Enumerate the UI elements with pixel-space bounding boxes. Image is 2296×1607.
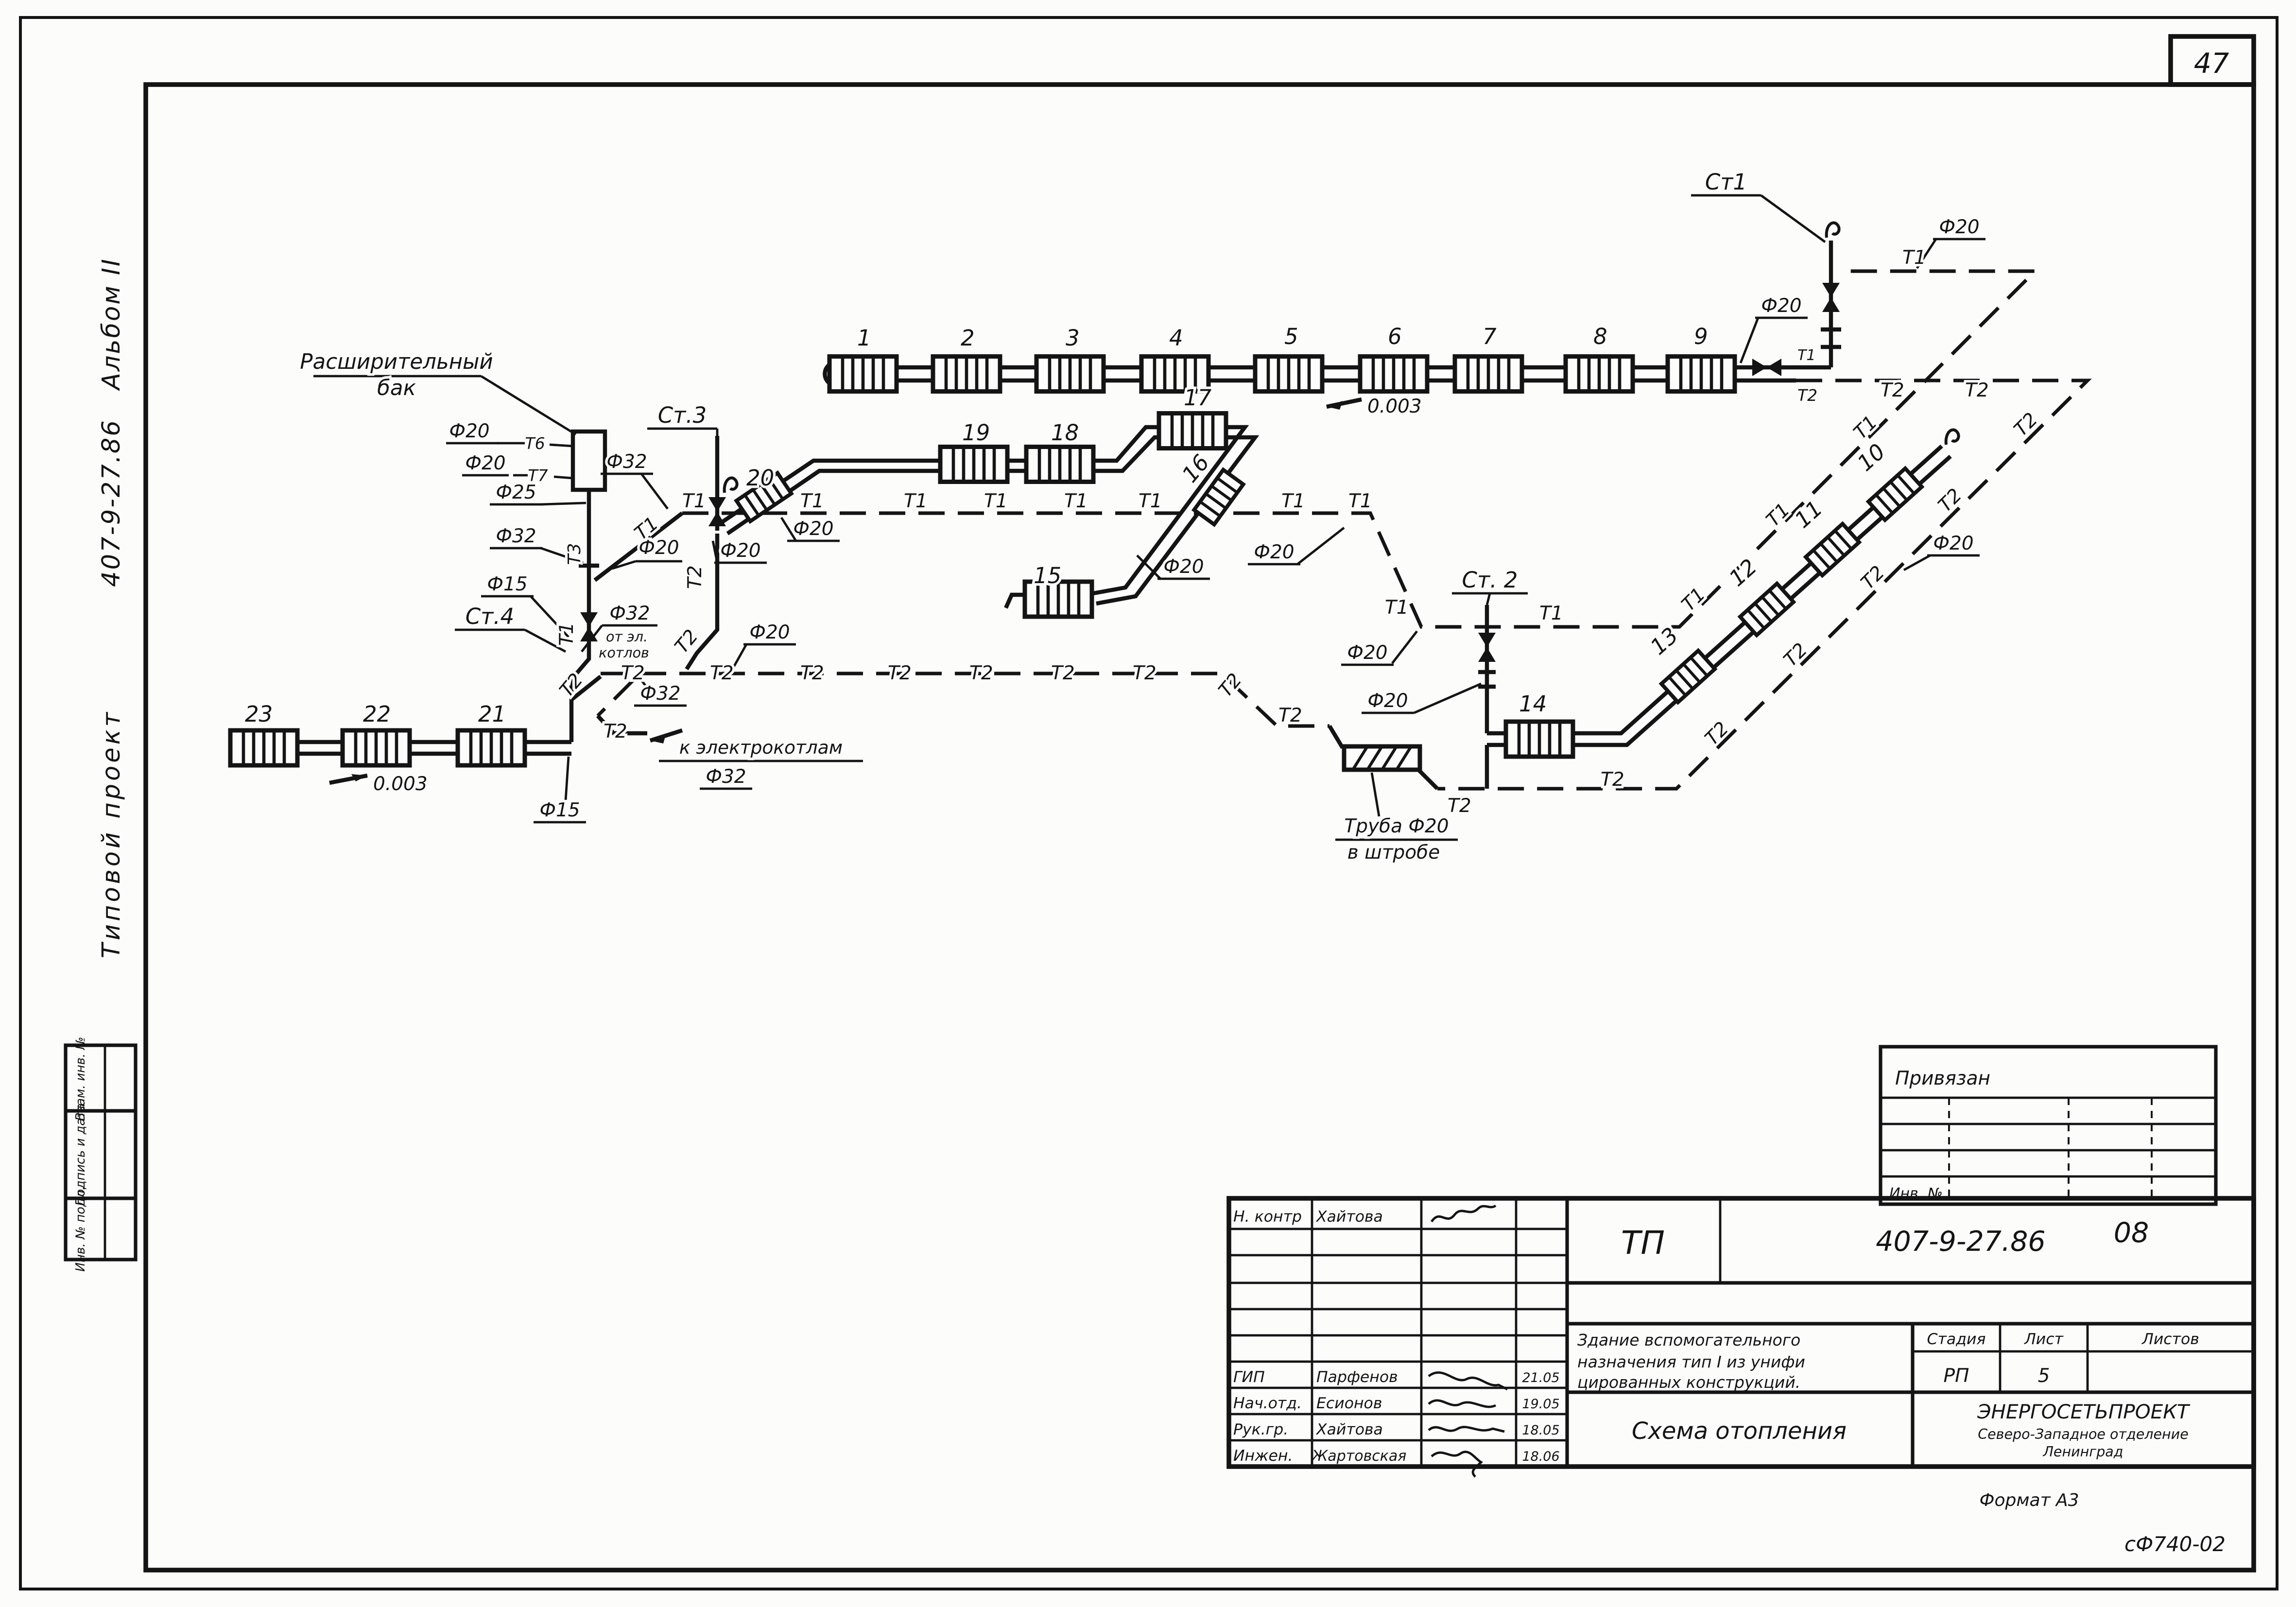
pipe-label-t1: Т1 [984, 490, 1008, 512]
title-block: Н. контр Хайтова ГИП Парфенов 21.05 Нач.… [1229, 1198, 2254, 1477]
pipe-label-t2: Т2 [2010, 409, 2042, 441]
pipe-label-t2: Т2 [1051, 662, 1075, 684]
radiator-number: 5 [1284, 324, 1298, 349]
dim-label-f20: Ф20 [1933, 533, 1973, 554]
radiator-symbol [1360, 357, 1427, 392]
slope-value: 0.003 [373, 773, 428, 795]
dim-label-f32: Ф32 [609, 603, 650, 624]
expansion-tank [573, 432, 605, 490]
pipe-label-t2: Т2 [1701, 718, 1733, 750]
radiator-symbol [343, 730, 410, 765]
tb-name: Хайтова [1315, 1421, 1383, 1438]
radiator-symbol [1868, 468, 1922, 520]
dim-label-f20: Ф20 [720, 540, 760, 562]
pipe-label-t1: Т1 [1281, 490, 1305, 512]
margin-project-type: Типовой проект [97, 709, 126, 958]
pipe-label-t1: Т1 [682, 490, 706, 512]
dim-label-f20: Ф20 [465, 452, 505, 474]
pipe-label-t2: Т2 [1779, 639, 1812, 671]
form-code: сФ740-02 [2124, 1532, 2226, 1556]
tb-name: Есионов [1316, 1395, 1382, 1412]
dim-label-f15: Ф15 [539, 799, 580, 821]
radiator-symbol [933, 357, 1000, 392]
air-vent-icon [725, 478, 737, 493]
drawing-sheet: 47 Альбом II 407-9-27.86 Типовой проект … [0, 0, 2296, 1607]
tb-sheets-label: Листов [2141, 1331, 2199, 1348]
margin-album: Альбом II [97, 258, 126, 391]
tb-role: Нач.отд. [1233, 1395, 1302, 1412]
note-from-boilers-2: котлов [599, 645, 649, 661]
radiator-number: 10 [1852, 438, 1890, 476]
radiator-number: 18 [1051, 420, 1079, 446]
radiator-number: 20 [746, 465, 774, 491]
tb-sheet-value: 5 [2038, 1365, 2050, 1387]
tb-name: Парфенов [1316, 1368, 1398, 1386]
signature [1429, 1427, 1504, 1432]
dim-label-f32: Ф32 [706, 766, 746, 788]
outer-border [20, 17, 2277, 1589]
radiator-number: 22 [363, 701, 391, 727]
radiator-number: 21 [478, 701, 506, 727]
radiator-symbol [940, 447, 1007, 482]
tb-date: 18.05 [1522, 1423, 1559, 1438]
tb-stage-label: Стадия [1927, 1331, 1986, 1348]
pipe-label-t1: Т1 [1539, 603, 1563, 624]
pipe-label-t2: Т2 [621, 662, 645, 684]
pipe-label-t2: Т2 [684, 565, 706, 589]
note-to-boilers: к электрокотлам [679, 737, 843, 758]
pipe-label-t2: Т2 [604, 721, 627, 743]
radiator-symbol [458, 730, 525, 765]
heating-scheme-svg: 47 Альбом II 407-9-27.86 Типовой проект … [0, 0, 2296, 1607]
radiator-symbol [1668, 357, 1735, 392]
pipe-label-t1: Т1 [1902, 247, 1926, 269]
note-chase-line1: Труба Ф20 [1344, 815, 1449, 837]
riser-label-st4: Ст.4 [466, 604, 515, 629]
radiator-number: 14 [1519, 691, 1547, 717]
radiator-number: 6 [1388, 324, 1402, 349]
radiator-number: 15 [1034, 563, 1061, 588]
tb-date: 18.06 [1522, 1449, 1559, 1464]
tb-drawing-title: Схема отопления [1632, 1417, 1847, 1445]
margin-project-code: 407-9-27.86 [97, 419, 126, 587]
tank-tap-t7: Т7 [528, 466, 548, 485]
tank-pipe-t3: Т3 [565, 543, 585, 565]
pipe-label-t2: Т2 [1934, 484, 1966, 517]
radiator-symbol [1506, 722, 1573, 757]
pipe-label-t2: Т2 [1601, 769, 1624, 791]
tb-object-line2: назначения тип I из унифи [1577, 1352, 1805, 1371]
radiator-number: 8 [1593, 324, 1607, 349]
tb-role: ГИП [1233, 1368, 1265, 1386]
radiator-number: 2 [961, 325, 975, 351]
pipe-label-t1: Т1 [1348, 490, 1372, 512]
dim-label-f32: Ф32 [496, 525, 536, 547]
tb-org-city: Ленинград [2043, 1444, 2123, 1460]
air-vent-icon [1946, 430, 1959, 445]
pipe-in-chase-symbol [1344, 746, 1420, 770]
pipe-label-t1: Т1 [1762, 499, 1794, 531]
radiator-number: 23 [245, 701, 273, 727]
note-chase-line2: в штробе [1347, 842, 1440, 864]
dim-label-f20: Ф20 [749, 622, 790, 643]
tb-object-line1: Здание вспомогательного [1577, 1331, 1800, 1349]
pipe-label-t2: Т2 [1881, 380, 1904, 401]
dim-label-f15: Ф15 [487, 573, 527, 595]
radiator-number: 11 [1790, 495, 1828, 533]
valve-icon [1822, 283, 1840, 312]
valve-icon [580, 612, 598, 641]
radiator-number: 9 [1694, 324, 1708, 349]
pipe-label-t2: Т2 [969, 662, 993, 684]
dim-label-f20: Ф20 [639, 537, 679, 559]
riser-label-st3: Ст.3 [658, 402, 707, 428]
radiator-number: 16 [1177, 449, 1214, 487]
valve-icon [1478, 633, 1496, 662]
dim-label-f32: Ф32 [606, 451, 647, 473]
tb-date: 19.05 [1522, 1397, 1559, 1412]
radiator-symbol [230, 730, 297, 765]
signature [1429, 1400, 1496, 1407]
radiator-number: 7 [1483, 324, 1497, 349]
radiator-number: 17 [1184, 385, 1212, 411]
tank-label-line2: бак [377, 376, 416, 400]
tb-tp: ТП [1621, 1224, 1665, 1261]
stamp-boxes: Взам. инв. № Подпись и дата Инв. № подл. [66, 1037, 136, 1272]
pipe-label-t2: Т2 [1214, 669, 1246, 701]
dim-label-f20: Ф20 [1254, 541, 1294, 563]
dim-label-f20: Ф20 [449, 420, 489, 442]
pipe-label-t2: Т2 [1797, 386, 1817, 405]
valve-icon [1752, 359, 1781, 376]
tb-role: Рук.гр. [1233, 1421, 1288, 1438]
pipe-label-t1: Т1 [1385, 597, 1409, 619]
pipe-label-t2: Т2 [888, 662, 912, 684]
dim-label-f32: Ф32 [640, 683, 680, 705]
dim-label-f20: Ф20 [1347, 642, 1387, 664]
pipe-label-t1: Т1 [556, 622, 578, 646]
pipe-label-t2: Т2 [1857, 562, 1889, 594]
tb-name: Хайтова [1315, 1208, 1383, 1226]
radiator-symbol [1036, 357, 1104, 392]
dim-label-f20: Ф20 [1939, 216, 1979, 238]
slope-value: 0.003 [1367, 396, 1422, 417]
tb-doc-number: 407-9-27.86 [1876, 1226, 2045, 1258]
pipe-label-t1: Т1 [1849, 412, 1882, 444]
page-number: 47 [2194, 48, 2229, 80]
dim-label-f20: Ф20 [1761, 295, 1801, 317]
radiator-number: 4 [1169, 325, 1183, 351]
binding-title: Привязан [1895, 1068, 1990, 1089]
radiator-symbol [1255, 357, 1322, 392]
radiator-symbol [1566, 357, 1633, 392]
radiator-symbol [829, 357, 897, 392]
tb-org-branch: Северо-Западное отделение [1978, 1426, 2188, 1442]
radiator-number: 1 [857, 325, 871, 351]
binding-block: Привязан Инв. № [1881, 1047, 2216, 1204]
pipe-label-t1: Т1 [1677, 584, 1709, 616]
tb-sheet-label: Лист [2024, 1331, 2064, 1348]
pipe-label-t2: Т2 [1278, 705, 1302, 726]
tb-role: Н. контр [1233, 1208, 1302, 1226]
riser-label-st1: Ст1 [1705, 169, 1747, 195]
dim-label-f20: Ф20 [1367, 690, 1408, 712]
pipe-label-t2: Т2 [1133, 662, 1157, 684]
radiator-symbol [1661, 651, 1715, 702]
dim-label-f20: Ф20 [793, 518, 833, 540]
tb-role: Инжен. [1233, 1447, 1293, 1465]
tank-label-line1: Расширительный [300, 350, 493, 374]
pipe-label-t1: Т1 [904, 490, 928, 512]
radiator-symbol [1026, 447, 1093, 482]
tb-date: 21.05 [1522, 1370, 1559, 1385]
pipe-label-t2: Т2 [555, 669, 587, 701]
tb-name: Жартовская [1311, 1448, 1406, 1465]
pipe-label-t2: Т2 [1448, 795, 1471, 817]
tank-tap-t6: Т6 [525, 434, 545, 453]
pipe-label-t1: Т1 [1797, 347, 1815, 364]
radiator-symbol [1740, 584, 1794, 635]
air-vent-icon [1827, 223, 1839, 238]
note-from-boilers-1: от эл. [606, 629, 648, 645]
pipe-label-t2: Т2 [800, 662, 824, 684]
radiator-symbol [1159, 414, 1226, 449]
stamp-inv: Инв. № подл. [73, 1186, 88, 1272]
pipe-label-t1: Т1 [800, 490, 824, 512]
radiator-number: 19 [962, 420, 990, 446]
tb-doc-suffix: 08 [2114, 1217, 2149, 1249]
radiator-number: 3 [1066, 325, 1080, 351]
pipe-label-t2: Т2 [1965, 380, 1989, 401]
radiator-number: 12 [1724, 553, 1762, 591]
signature [1432, 1206, 1496, 1222]
pipe-label-t2: Т2 [710, 662, 734, 684]
pipe-label-t1: Т1 [1064, 490, 1088, 512]
format-note: Формат А3 [1979, 1490, 2079, 1510]
tb-object-line3: цированных конструкций. [1577, 1373, 1800, 1392]
tb-stage-value: РП [1944, 1365, 1969, 1387]
dim-label-f20: Ф20 [1163, 556, 1204, 578]
riser-label-st2: Ст. 2 [1462, 567, 1518, 593]
radiator-symbol [1806, 524, 1859, 575]
tb-org: ЭНЕРГОСЕТЬПРОЕКТ [1977, 1400, 2191, 1423]
radiator-symbol [1455, 357, 1522, 392]
pipe-label-t1: Т1 [1139, 490, 1162, 512]
